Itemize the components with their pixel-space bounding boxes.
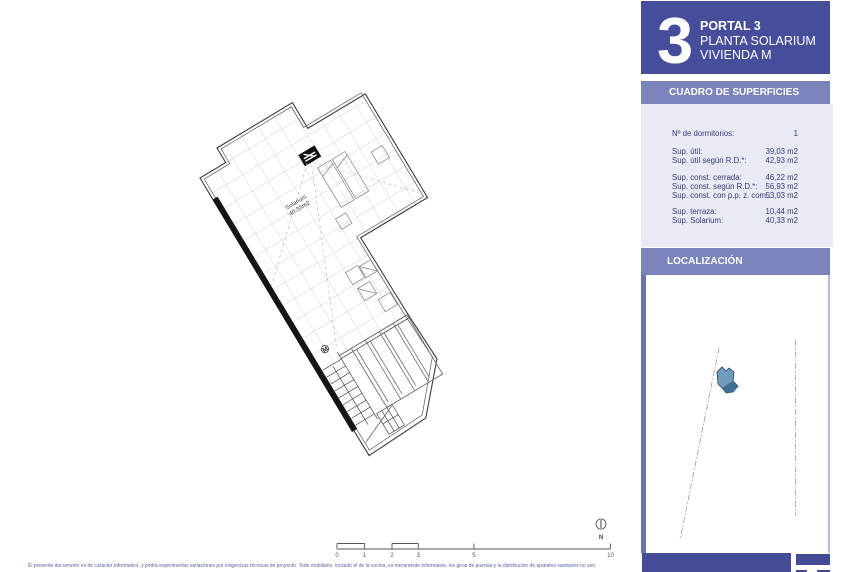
svg-text:10: 10	[607, 553, 614, 559]
svg-text:5: 5	[472, 553, 476, 559]
svg-text:2: 2	[390, 553, 394, 559]
svg-text:0: 0	[335, 553, 339, 559]
svg-text:1: 1	[363, 553, 367, 559]
svg-text:3: 3	[417, 553, 421, 559]
svg-text:N: N	[599, 535, 603, 541]
